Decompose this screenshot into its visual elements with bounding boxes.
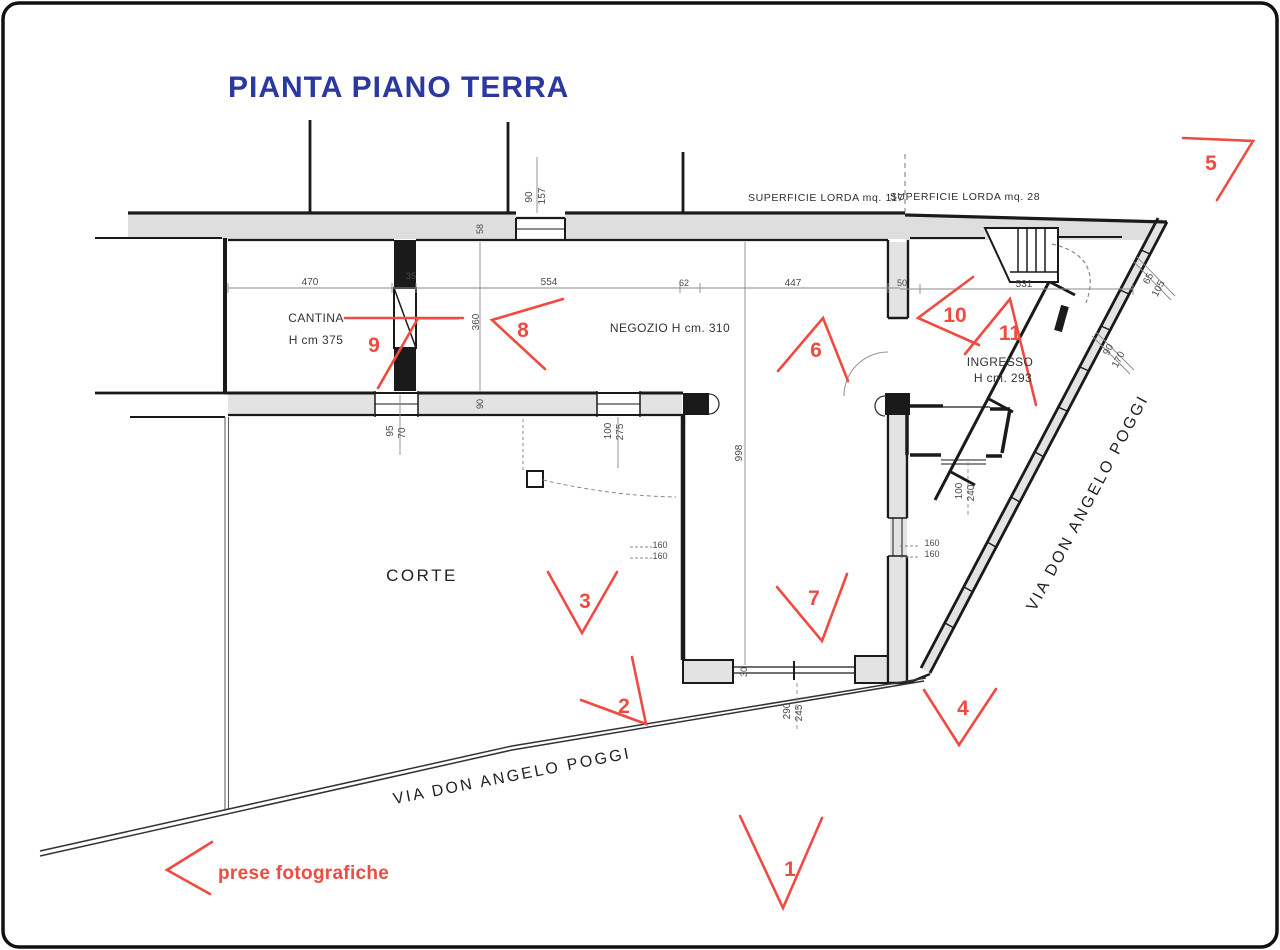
street-name-bottom: VIA DON ANGELO POGGI — [392, 745, 633, 808]
marker-11-chevron — [965, 299, 1036, 405]
wall-stubs-above — [310, 120, 683, 213]
ingresso-label: INGRESSO — [967, 355, 1034, 369]
dim-35: 35 — [406, 271, 416, 281]
door-swing-arc — [844, 352, 888, 396]
dim-90-window: 90 — [475, 399, 485, 409]
dim-554: 554 — [541, 277, 558, 288]
dim-160-b1: 160 — [924, 538, 939, 548]
pillar-nub-right — [875, 396, 885, 416]
marker-2-chevron — [581, 657, 646, 724]
floor-plan-page: 470 35 554 62 447 50 531 58 90 157 360 9… — [0, 0, 1280, 950]
diagonal-wall-band — [921, 218, 1167, 673]
courtyard-boundary-line — [225, 417, 229, 809]
dim-275: 275 — [615, 423, 626, 440]
top-wall-band-left — [128, 215, 516, 239]
dim-50: 50 — [897, 278, 907, 288]
page-border-frame — [3, 3, 1277, 947]
top-wall-band-right — [565, 215, 905, 239]
vestibule-bottom-door — [941, 460, 986, 464]
marker-7-number: 7 — [808, 587, 820, 610]
cantina-label: CANTINA — [288, 311, 343, 325]
dim-62: 62 — [679, 278, 689, 288]
shopfront-pier-left — [683, 660, 733, 683]
shopfront-pier-right — [855, 656, 888, 683]
diagonal-wall-outer — [930, 222, 1167, 673]
dim-360: 360 — [471, 313, 482, 330]
marker-10-number: 10 — [943, 304, 966, 327]
corte-pillar — [527, 471, 543, 487]
superficie-lorda-right-label: SUPERFICIE LORDA mq. 28 — [890, 191, 1040, 203]
dim-160-a1: 160 — [652, 540, 667, 550]
dim-160-a2: 160 — [652, 551, 667, 561]
marker-2-number: 2 — [618, 695, 630, 718]
page-title: PIANTA PIANO TERRA — [228, 71, 569, 104]
dim-531: 531 — [1016, 279, 1033, 290]
marker-6-number: 6 — [810, 339, 822, 362]
legend-label: prese fotografiche — [218, 863, 389, 884]
gate-swing-curve — [543, 480, 676, 497]
dim-line-horizontal-chain — [228, 288, 1133, 289]
corte-label: CORTE — [386, 566, 458, 585]
photo-markers — [167, 138, 1253, 908]
dim-245: 245 — [794, 704, 805, 721]
stairs-outline — [985, 228, 1058, 282]
dim-95: 95 — [385, 425, 396, 437]
pillar-top-left — [683, 393, 709, 415]
dim-998: 998 — [734, 444, 745, 461]
wall-band-fills — [128, 215, 1167, 683]
dim-90-top: 90 — [524, 191, 535, 203]
dim-100-b: 100 — [954, 482, 965, 499]
marker-3-number: 3 — [579, 590, 591, 613]
marker-1-chevron — [740, 816, 822, 908]
superficie-lorda-left-label: SUPERFICIE LORDA mq. 117 — [748, 192, 904, 204]
pillar-nub-left — [709, 394, 719, 414]
dim-70: 70 — [397, 427, 408, 439]
cantina-height-label: H cm 375 — [289, 333, 344, 347]
marker-4-number: 4 — [957, 697, 969, 720]
marker-11-number: 11 — [999, 322, 1022, 345]
dim-100-a: 100 — [603, 422, 614, 439]
vestibule-walls — [905, 406, 1010, 456]
marker-5-number: 5 — [1205, 152, 1217, 175]
marker-1-number: 1 — [784, 858, 796, 881]
construction-details — [40, 154, 1090, 856]
floor-plan-drawing: 470 35 554 62 447 50 531 58 90 157 360 9… — [0, 0, 1280, 950]
dim-157: 157 — [537, 187, 548, 204]
street-name-right: VIA DON ANGELO POGGI — [1024, 392, 1153, 614]
dim-290: 290 — [782, 702, 793, 719]
ingresso-height-label: H cm. 293 — [974, 371, 1032, 385]
negozio-label: NEGOZIO H cm. 310 — [610, 321, 730, 335]
dim-leaders-160 — [630, 546, 920, 558]
marker-8-number: 8 — [517, 319, 529, 342]
dim-470: 470 — [302, 277, 319, 288]
dim-447: 447 — [785, 278, 802, 289]
corridor-door-block — [1058, 306, 1065, 331]
dim-58: 58 — [475, 224, 485, 234]
marker-9-number: 9 — [368, 334, 380, 357]
dim-30: 30 — [739, 667, 749, 677]
shopfront-mullions — [733, 661, 855, 680]
dim-160-b2: 160 — [924, 549, 939, 559]
street-edge-line-1 — [40, 678, 926, 851]
dim-240: 240 — [966, 484, 977, 501]
legend-chevron — [167, 842, 212, 894]
marker-5-chevron — [1183, 138, 1253, 200]
